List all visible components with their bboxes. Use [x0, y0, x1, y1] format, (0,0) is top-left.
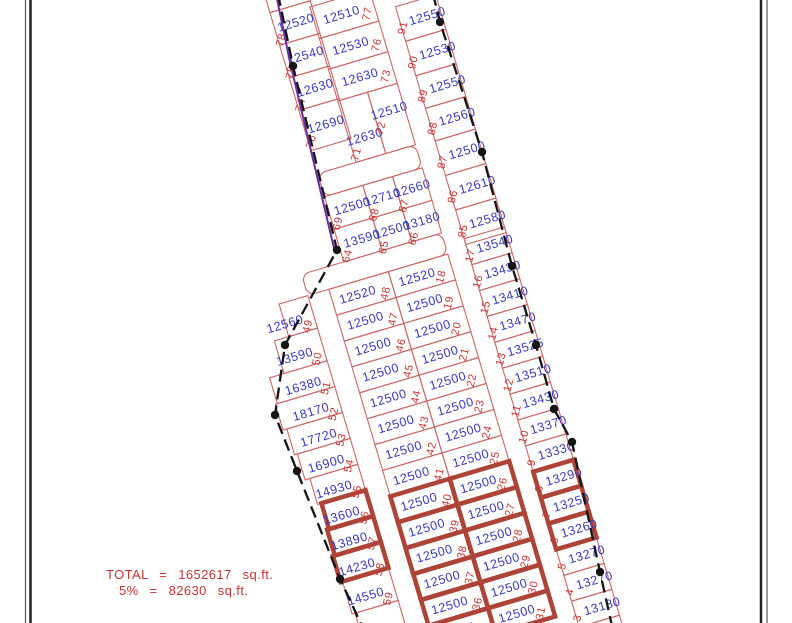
boundary-vertex-dot — [596, 568, 604, 576]
plat-sheet: 1252078125407512630741269070125107712530… — [0, 0, 792, 623]
lot-number-label: 17 — [463, 248, 478, 264]
lot-area-label: 12550 — [427, 72, 467, 96]
lot-area-label: 12510 — [321, 3, 361, 27]
lot-number-label: 6 — [548, 536, 561, 545]
lot-number-label: 68 — [367, 207, 382, 223]
lot-number-label: 56 — [357, 510, 372, 526]
lot-area-label: 12500 — [435, 395, 475, 419]
lot-area-label: 12530 — [331, 34, 371, 58]
lot-number-label: 7 — [541, 510, 554, 519]
lot-number-label: 53 — [334, 432, 349, 448]
lot-shape — [260, 0, 310, 13]
lot-number-label: 50 — [310, 351, 325, 367]
lot-number-label: 15 — [479, 299, 494, 315]
boundary-vertex-dot — [568, 438, 576, 446]
lot-number-label: 64 — [340, 248, 355, 264]
lot-number-label: 88 — [426, 121, 441, 137]
lot-number-label: 52 — [327, 406, 342, 422]
plat-map: 1252078125407512630741269070125107712530… — [0, 0, 792, 623]
lot-area-label: 16380 — [283, 374, 323, 398]
lot-number-label: 10 — [517, 429, 532, 445]
lot-number-label: 76 — [370, 37, 385, 53]
lot-number-label: 71 — [349, 146, 364, 162]
lot-number-label: 12 — [502, 377, 517, 393]
lot-area-label: 13590 — [275, 345, 315, 369]
lot-number-label: 91 — [396, 20, 411, 36]
lot-area-label: 12630 — [295, 76, 335, 100]
boundary-vertex-dot — [336, 575, 344, 583]
area-totals: TOTAL = 1652617 sq.ft. 5% = 82630 sq.ft. — [106, 567, 273, 599]
lot-number-label: 65 — [377, 239, 392, 255]
lot-area-label: 17720 — [299, 426, 339, 450]
lot-area-label: 12500 — [361, 360, 401, 384]
lot-number-label: 59 — [381, 591, 396, 607]
lot-area-label: 12520 — [397, 265, 437, 289]
lot-area-label: 12690 — [306, 112, 346, 136]
lot-number-label: 72 — [374, 120, 389, 136]
lot-area-label: 12500 — [420, 343, 460, 367]
lot-area-label: 12500 — [384, 438, 424, 462]
lot-area-label: 12500 — [376, 412, 416, 436]
boundary-vertex-dot — [478, 148, 486, 156]
lot-number-label: 87 — [436, 154, 451, 170]
lot-area-label: 12500 — [353, 335, 393, 359]
boundary-vertex-dot — [436, 18, 444, 26]
lot-number-label: 55 — [350, 484, 365, 500]
lot-number-label: 58 — [373, 561, 388, 577]
boundary-vertex-dot — [281, 341, 289, 349]
lot-number-label: 67 — [397, 198, 412, 214]
lot-number-label: 86 — [446, 189, 461, 205]
lot-number-label: 90 — [406, 55, 421, 71]
lot-number-label: 49 — [301, 318, 316, 334]
lot-area-label: 13410 — [490, 283, 530, 307]
lot-number-label: 89 — [416, 88, 431, 104]
lot-area-label: 12510 — [369, 99, 409, 123]
boundary-vertex-dot — [532, 341, 540, 349]
lot-number-label: 14 — [486, 325, 501, 341]
lot-number-label: 4 — [564, 588, 577, 597]
lot-number-label: 51 — [319, 380, 334, 396]
boundary-vertex-dot — [289, 62, 297, 70]
lot-number-label: 85 — [456, 223, 471, 239]
lot-area-label: 18170 — [291, 400, 331, 424]
lot-number-label: 3 — [571, 613, 584, 622]
lot-area-label: 16900 — [306, 452, 346, 476]
lot-number-label: 9 — [525, 458, 538, 467]
lot-number-label: 66 — [407, 231, 422, 247]
lot-number-label: 77 — [360, 6, 375, 22]
lot-area-label: 13180 — [582, 594, 622, 618]
lot-number-label: 5 — [556, 562, 569, 571]
lot-number-label: 57 — [365, 535, 380, 551]
lot-area-label: 12500 — [345, 309, 385, 333]
total-area-text: TOTAL = 1652617 sq.ft. — [106, 567, 273, 583]
lot-area-label: 13270 — [574, 568, 614, 592]
lot-number-label: 73 — [379, 68, 394, 84]
lot-area-label: 14550 — [346, 584, 386, 608]
lot-area-label: 12660 — [392, 176, 432, 200]
lot-number-label: 16 — [471, 274, 486, 290]
lot-area-label: 12500 — [368, 386, 408, 410]
boundary-vertex-dot — [293, 467, 301, 475]
lot-area-label: 12500 — [412, 317, 452, 341]
lot-area-label: 12500 — [405, 291, 445, 315]
boundary-vertex-dot — [550, 405, 558, 413]
lot-number-label: 8 — [533, 484, 546, 493]
lot-area-label: 12500 — [428, 369, 468, 393]
lot-area-label: 12520 — [338, 283, 378, 307]
lot-area-label: 12560 — [265, 312, 305, 336]
lot-area-label: 12530 — [418, 38, 458, 62]
five-percent-area-text: 5% = 82630 sq.ft. — [119, 583, 273, 599]
lot-area-label: 13525 — [505, 335, 545, 359]
boundary-vertex-dot — [333, 246, 341, 254]
lot-area-label: 13540 — [475, 232, 515, 256]
lot-area-label: 12630 — [340, 65, 380, 89]
boundary-vertex-dot — [271, 411, 279, 419]
plat-grid: 1252078125407512630741269070125107712530… — [159, 0, 632, 623]
lot-number-label: 13 — [494, 351, 509, 367]
lot-area-label: 12500 — [443, 420, 483, 444]
lot-number-label: 54 — [342, 458, 357, 474]
lot-number-label: 11 — [509, 403, 524, 418]
boundary-vertex-dot — [508, 262, 516, 270]
